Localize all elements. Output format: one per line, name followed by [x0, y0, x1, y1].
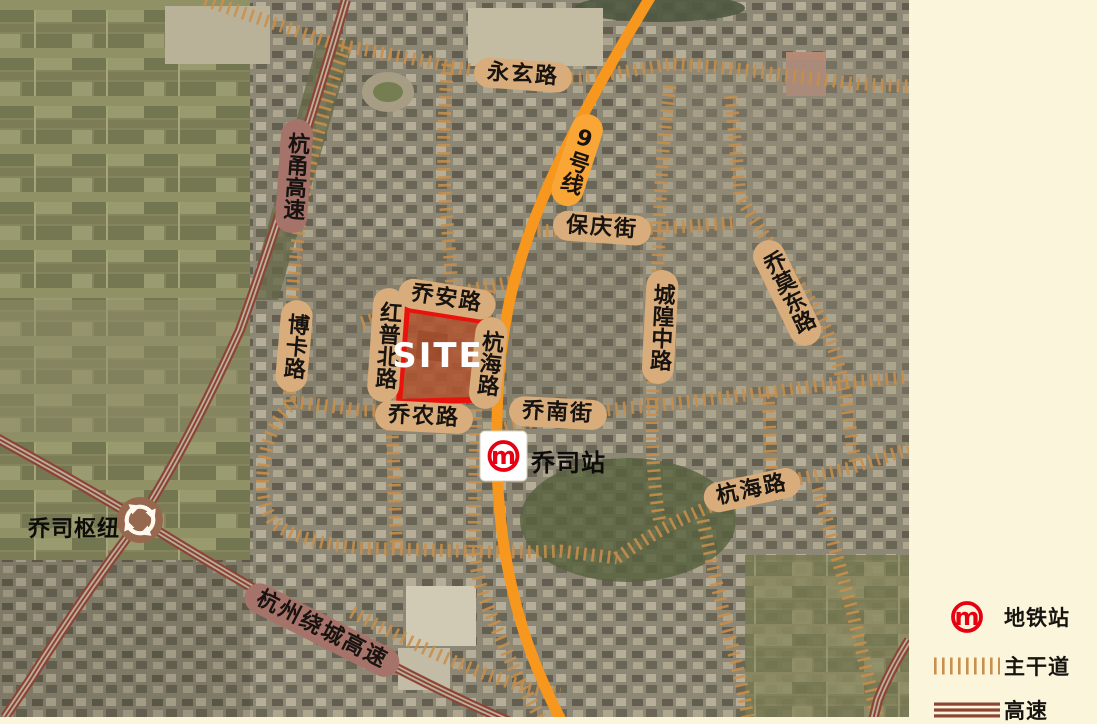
site-polygon: [399, 309, 483, 402]
metro-station-marker: [480, 431, 527, 481]
metro-logo-icon: [490, 442, 518, 470]
legend-label-metro-station: 地铁站: [1004, 602, 1070, 632]
legend-item-metro-station: m 地铁站: [930, 597, 1092, 637]
site-location-map-page: m: [0, 0, 1097, 724]
legend-item-arterial-road: 主干道: [930, 651, 1092, 681]
satellite-map: m: [0, 0, 909, 717]
roundabout-icon: [117, 497, 163, 543]
legend-label-highway: 高速: [1004, 695, 1048, 724]
legend-label-arterial-road: 主干道: [1004, 651, 1070, 681]
metro-station-icon: m: [930, 597, 1004, 637]
legend: m 地铁站 主干道 高速: [930, 597, 1092, 724]
legend-item-highway: 高速: [930, 695, 1092, 724]
svg-text:m: m: [954, 603, 979, 631]
map-canvas: m: [0, 0, 909, 717]
arterial-road-icon: [930, 656, 1004, 676]
highway-icon: [930, 701, 1004, 719]
